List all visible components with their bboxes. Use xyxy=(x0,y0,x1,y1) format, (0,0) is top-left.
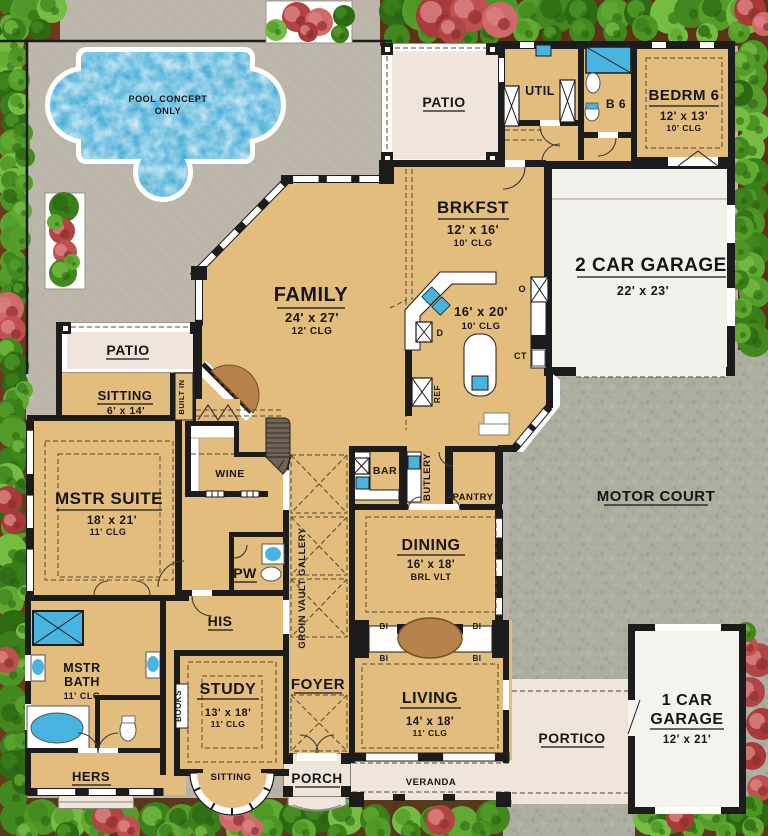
svg-text:12' x 16': 12' x 16' xyxy=(447,223,499,237)
svg-text:UTIL: UTIL xyxy=(525,84,555,98)
svg-text:BEDRM 6: BEDRM 6 xyxy=(648,87,719,104)
svg-text:PORCH: PORCH xyxy=(291,771,342,786)
svg-text:HIS: HIS xyxy=(208,613,233,629)
svg-text:BRKFST: BRKFST xyxy=(437,198,509,217)
svg-text:WINE: WINE xyxy=(215,468,244,480)
svg-text:1 CAR: 1 CAR xyxy=(662,692,713,709)
svg-text:FAMILY: FAMILY xyxy=(274,284,349,306)
svg-text:SITTING: SITTING xyxy=(211,772,252,783)
svg-text:24' x 27': 24' x 27' xyxy=(285,310,339,325)
svg-text:BAR: BAR xyxy=(373,465,397,477)
svg-text:PANTRY: PANTRY xyxy=(453,492,494,503)
svg-text:11' CLG: 11' CLG xyxy=(90,527,127,537)
svg-text:MSTR SUITE: MSTR SUITE xyxy=(55,489,163,508)
svg-text:10' CLG: 10' CLG xyxy=(461,321,500,332)
svg-text:10' CLG: 10' CLG xyxy=(453,238,492,249)
svg-text:16' x 20': 16' x 20' xyxy=(454,304,508,319)
svg-text:HERS: HERS xyxy=(72,769,110,784)
svg-text:11' CLG: 11' CLG xyxy=(413,728,448,738)
svg-text:22' x 23': 22' x 23' xyxy=(617,284,669,298)
svg-text:MSTR: MSTR xyxy=(63,661,100,675)
svg-text:GARAGE: GARAGE xyxy=(650,711,723,728)
svg-text:LIVING: LIVING xyxy=(402,690,458,707)
svg-text:SITTING: SITTING xyxy=(98,388,153,403)
svg-text:PW: PW xyxy=(233,565,257,581)
svg-text:MOTOR COURT: MOTOR COURT xyxy=(597,488,716,505)
svg-text:BATH: BATH xyxy=(64,675,100,689)
svg-text:GROIN VAULT GALLERY: GROIN VAULT GALLERY xyxy=(297,527,308,648)
svg-text:ONLY: ONLY xyxy=(155,106,182,116)
svg-text:10' CLG: 10' CLG xyxy=(666,123,701,133)
svg-text:BI: BI xyxy=(380,654,389,663)
svg-text:BI: BI xyxy=(380,622,389,631)
svg-text:12' x 13': 12' x 13' xyxy=(660,111,708,123)
svg-text:11' CLG: 11' CLG xyxy=(64,691,101,701)
svg-text:2 CAR GARAGE: 2 CAR GARAGE xyxy=(575,255,727,276)
svg-text:BOOKS: BOOKS xyxy=(174,690,183,722)
svg-text:FOYER: FOYER xyxy=(291,676,345,693)
svg-text:6' x 14': 6' x 14' xyxy=(107,405,145,417)
svg-text:14' x 18': 14' x 18' xyxy=(406,716,454,728)
svg-text:B 6: B 6 xyxy=(606,97,626,111)
svg-text:BI: BI xyxy=(473,622,482,631)
svg-text:PATIO: PATIO xyxy=(106,342,149,358)
svg-text:18' x 21': 18' x 21' xyxy=(87,513,137,527)
svg-text:O: O xyxy=(518,284,526,294)
svg-text:PORTICO: PORTICO xyxy=(538,730,605,746)
svg-text:STUDY: STUDY xyxy=(200,681,257,698)
svg-text:PATIO: PATIO xyxy=(422,94,465,110)
svg-text:BRL VLT: BRL VLT xyxy=(411,572,452,582)
svg-text:12' x 21': 12' x 21' xyxy=(663,734,711,746)
svg-text:BUTLERY: BUTLERY xyxy=(422,453,433,501)
svg-text:DINING: DINING xyxy=(402,537,461,554)
svg-text:12' CLG: 12' CLG xyxy=(292,326,333,337)
svg-text:BI: BI xyxy=(473,654,482,663)
svg-text:CT: CT xyxy=(514,351,527,361)
svg-text:16' x 18': 16' x 18' xyxy=(407,559,455,571)
svg-text:13' x 18': 13' x 18' xyxy=(205,707,251,719)
svg-text:POOL CONCEPT: POOL CONCEPT xyxy=(128,94,207,104)
svg-text:REF: REF xyxy=(432,385,442,404)
svg-text:BUILT IN: BUILT IN xyxy=(177,379,186,414)
svg-text:11' CLG: 11' CLG xyxy=(211,719,246,729)
svg-text:D: D xyxy=(437,328,444,338)
svg-text:VERANDA: VERANDA xyxy=(406,777,456,788)
